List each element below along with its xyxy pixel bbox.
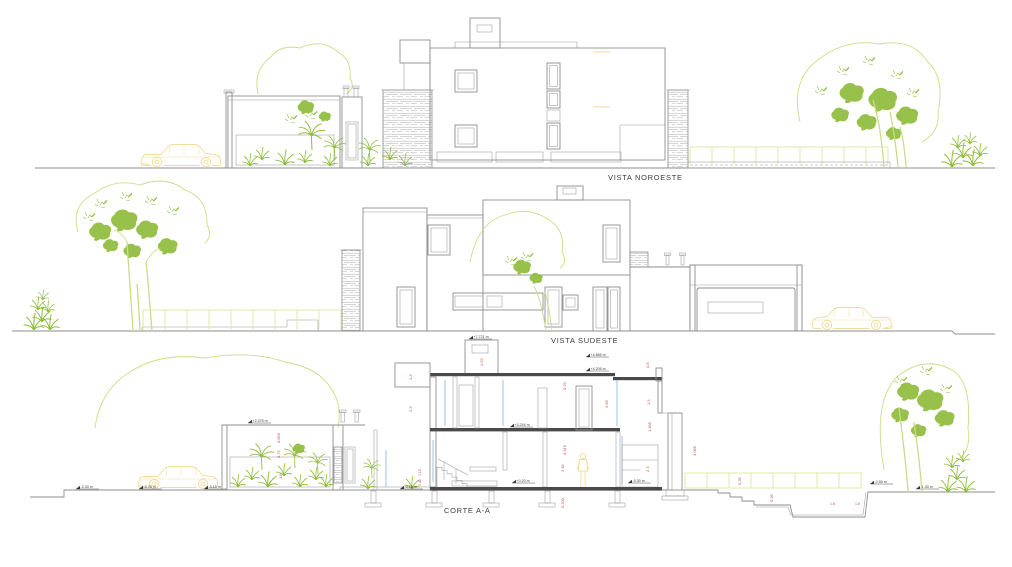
car-outline — [141, 145, 221, 167]
window-square — [455, 125, 477, 147]
dimension: 0.200 — [560, 497, 565, 508]
interior-wall — [543, 432, 547, 487]
low-wall — [142, 320, 318, 331]
fence — [688, 147, 890, 168]
dimension: 0.72 — [276, 449, 281, 458]
window-strip — [547, 123, 560, 149]
window-band — [453, 293, 543, 310]
interior-wall — [616, 432, 620, 487]
entry-gate — [342, 86, 362, 168]
ground-line — [12, 331, 995, 334]
roof-slab-right — [613, 377, 662, 380]
wall-right-lower — [668, 413, 682, 490]
human-figure — [578, 453, 589, 487]
vent-pipe — [681, 255, 684, 265]
svg-text:-0.30 m: -0.30 m — [633, 479, 645, 483]
window-framed — [428, 225, 450, 255]
footings — [365, 490, 688, 507]
vent-pipe — [666, 255, 669, 265]
volume-upper — [483, 200, 630, 275]
level-marker: +7.721 m — [469, 335, 492, 339]
chimney — [470, 18, 500, 48]
parapet-step — [400, 40, 430, 63]
tree-right — [797, 43, 940, 167]
door-leaf — [459, 385, 473, 426]
base-planter — [496, 152, 543, 162]
dimension: 0.315 — [562, 444, 567, 455]
dimension: 2.65 — [604, 399, 609, 408]
garden-wall — [224, 90, 340, 168]
dimension: 1.6 — [855, 502, 860, 506]
garage-door-handle — [708, 302, 763, 313]
stone-pillar — [342, 250, 360, 331]
door — [545, 287, 562, 327]
interior-wall — [453, 377, 457, 428]
window-strip — [547, 110, 560, 121]
roof-slab — [430, 373, 615, 376]
level-marker: -0.30 m — [628, 479, 651, 483]
svg-text:+4.865 m: +4.865 m — [591, 353, 606, 357]
dimension: 0.855 — [276, 432, 281, 443]
door-tall — [608, 287, 620, 331]
dimension: 2.3 — [645, 466, 650, 472]
svg-text:+4.205 m: +4.205 m — [591, 367, 606, 371]
drawing-title-noroeste: VISTA NOROESTE — [608, 173, 683, 182]
svg-text:+3.244 m: +3.244 m — [515, 423, 530, 427]
drawing-title-sudeste: VISTA SUDESTE — [551, 336, 618, 345]
courtyard-section: +2.375 m 0.855 0.72 1.8 — [222, 410, 365, 490]
base-planter — [551, 152, 621, 162]
level-marker: +3.244 m — [510, 423, 533, 427]
window-upper — [603, 225, 620, 262]
main-facade — [430, 18, 665, 162]
stone-pillar-left — [383, 90, 432, 168]
ground-slab — [430, 487, 662, 491]
dimension: 2.45 — [560, 463, 565, 472]
interior-wall — [475, 377, 479, 428]
door-tall — [593, 287, 607, 331]
dimension: 1.8 — [278, 473, 283, 479]
svg-text:-0.50 m: -0.50 m — [875, 480, 887, 484]
level-marker: -0.50 m — [870, 480, 893, 484]
level-marker: +4.205 m — [586, 367, 609, 371]
door-leaf — [538, 388, 547, 428]
dimension: 2.3 — [408, 406, 413, 412]
svg-text:-0.15 m: -0.15 m — [209, 485, 221, 489]
stone-band — [630, 252, 648, 267]
bush-right — [938, 450, 975, 492]
level-marker: -0.30 m — [76, 485, 99, 489]
facade-light-marks — [593, 52, 610, 107]
house-sudeste — [340, 186, 802, 331]
building-section: +7.721 m 1.52 +4.865 m +4.205 m 1.3 2.3 … — [365, 335, 697, 508]
dimension: 1.52 — [479, 357, 484, 366]
dimension: 0.95 — [769, 493, 774, 502]
interior-wall — [503, 432, 507, 470]
walkway-zone: 0.15 0.45 -0.18 m — [340, 430, 430, 490]
elevation-vista-noroeste: VISTA NOROESTE — [35, 18, 995, 182]
drawing-title-corte: CORTE A-A — [444, 506, 491, 515]
level-marker: -1.00 m — [916, 485, 939, 489]
dimension: 0.8 — [645, 362, 650, 368]
level-marker: +2.375 m — [248, 419, 271, 423]
staircase — [437, 459, 497, 487]
framed-opening — [576, 386, 592, 430]
dimension: 0.35 — [737, 476, 742, 485]
elevation-vista-sudeste: VISTA SUDESTE — [12, 181, 995, 345]
dimension: 0.15 — [418, 469, 422, 476]
svg-text:-0.30 m: -0.30 m — [81, 485, 93, 489]
window-tall — [397, 287, 415, 327]
dimension: 1.5 — [646, 399, 651, 405]
fence — [685, 473, 862, 488]
tree-canopy-outline — [95, 355, 339, 428]
car-outline — [813, 308, 893, 330]
dimension: 1.8 — [830, 502, 835, 506]
garage — [690, 265, 802, 331]
level-marker: +4.865 m — [586, 353, 609, 357]
bush-right — [942, 132, 988, 167]
volume-left — [363, 208, 427, 331]
vine-plant — [470, 211, 565, 331]
dimension: 0.45 — [418, 479, 422, 486]
window-strip — [547, 63, 560, 89]
tree-right — [880, 364, 969, 492]
ground-line — [30, 490, 995, 517]
tree-canopy-outline — [257, 44, 352, 94]
volume-middle — [427, 215, 483, 331]
wall-right-upper — [658, 381, 662, 413]
base-planter — [437, 152, 492, 162]
svg-text:-0.18 m: -0.18 m — [405, 485, 417, 489]
parapet-step — [404, 63, 430, 90]
dimension: 1.3 — [408, 374, 413, 380]
bush-left — [24, 290, 60, 330]
svg-text:+2.375 m: +2.375 m — [253, 419, 268, 423]
dimension: 1.465 — [647, 421, 652, 432]
elevations-and-section-svg: VISTA NOROESTE — [0, 0, 1012, 567]
svg-text:+7.721 m: +7.721 m — [474, 335, 489, 339]
svg-text:+0.20 m: +0.20 m — [517, 479, 530, 483]
dimension: 3.065 — [692, 445, 697, 456]
window-small — [563, 295, 578, 310]
section-corte-aa: -0.30 m -0.35 m -0.15 m +2.375 m 0.855 — [30, 335, 995, 517]
stone-pillar-right — [668, 90, 688, 168]
architectural-drawing-sheet: VISTA NOROESTE — [0, 0, 1012, 567]
svg-text:-0.35 m: -0.35 m — [144, 485, 156, 489]
window-square — [455, 70, 477, 92]
garage-door — [697, 288, 795, 331]
dimension: 0.29 — [562, 381, 567, 390]
level-marker: +0.20 m — [512, 479, 535, 483]
tree-left — [76, 181, 210, 331]
